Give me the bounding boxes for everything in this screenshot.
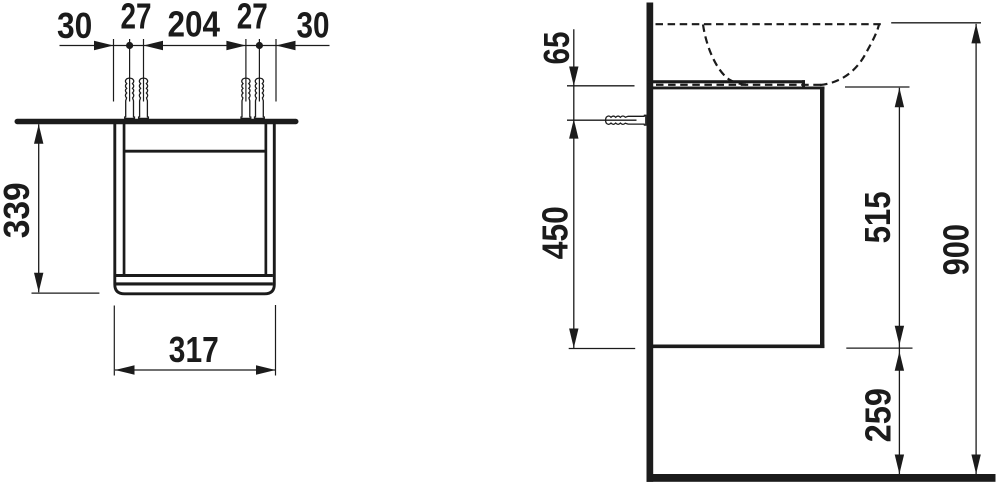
svg-text:65: 65 (536, 32, 577, 65)
svg-text:30: 30 (297, 5, 330, 46)
svg-text:515: 515 (857, 191, 898, 243)
svg-text:900: 900 (936, 224, 977, 275)
svg-text:317: 317 (169, 329, 219, 370)
svg-text:450: 450 (535, 206, 576, 259)
svg-text:27: 27 (121, 0, 152, 37)
svg-text:204: 204 (168, 4, 221, 45)
svg-text:259: 259 (857, 388, 898, 442)
svg-text:30: 30 (57, 5, 92, 46)
svg-text:339: 339 (0, 182, 37, 238)
svg-text:27: 27 (237, 0, 268, 37)
